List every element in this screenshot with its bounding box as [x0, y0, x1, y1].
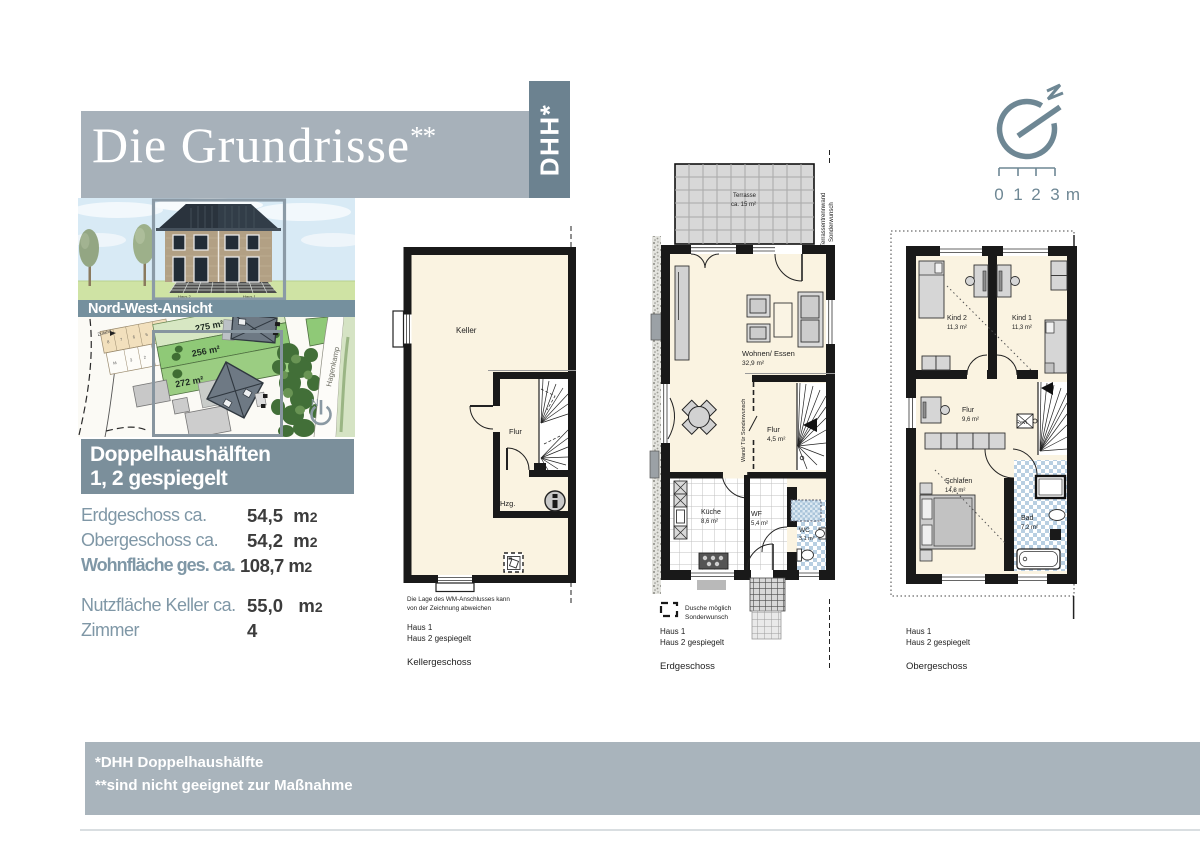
svg-text:1: 1: [1013, 185, 1022, 204]
svg-text:Flur: Flur: [767, 425, 780, 434]
svg-text:Terrassentrennwand: Terrassentrennwand: [821, 193, 827, 247]
svg-text:Sonderwunsch: Sonderwunsch: [829, 202, 835, 242]
svg-text:Erdgeschoss: Erdgeschoss: [660, 661, 715, 672]
svg-text:7,2 m²: 7,2 m²: [1021, 525, 1038, 531]
svg-text:11,3 m²: 11,3 m²: [947, 325, 967, 331]
svg-text:5,4 m²: 5,4 m²: [751, 521, 768, 527]
svg-text:8,6 m²: 8,6 m²: [701, 519, 718, 525]
svg-text:14,8 m²: 14,8 m²: [945, 488, 965, 494]
svg-text:Obergeschoss: Obergeschoss: [906, 661, 968, 672]
svg-text:4,5 m²: 4,5 m²: [767, 436, 786, 443]
svg-text:Haus 1: Haus 1: [660, 627, 686, 636]
svg-text:Haus 2 gespiegelt: Haus 2 gespiegelt: [660, 638, 725, 647]
svg-text:Küche: Küche: [701, 509, 721, 516]
svg-text:m: m: [1066, 185, 1080, 204]
svg-text:Hzg.: Hzg.: [500, 499, 515, 508]
svg-text:Bad: Bad: [1021, 515, 1034, 522]
svg-text:Die Lage des WM-Anschlusses ka: Die Lage des WM-Anschlusses kann: [407, 596, 510, 603]
svg-text:Dusche möglich: Dusche möglich: [685, 605, 732, 612]
svg-text:Flur: Flur: [962, 407, 975, 414]
svg-text:Kind 1: Kind 1: [1012, 315, 1032, 322]
svg-text:Kind 2: Kind 2: [947, 315, 967, 322]
svg-text:Keller: Keller: [456, 326, 477, 335]
svg-text:32,9 m²: 32,9 m²: [742, 360, 765, 367]
svg-text:WF: WF: [751, 511, 762, 518]
svg-text:3: 3: [1050, 185, 1059, 204]
svg-text:11,3 m²: 11,3 m²: [1012, 325, 1032, 331]
svg-text:Kellergeschoss: Kellergeschoss: [407, 657, 472, 668]
svg-text:Terrasse: Terrasse: [733, 193, 757, 199]
svg-text:Wand/ Tür Sonderwunsch: Wand/ Tür Sonderwunsch: [741, 399, 747, 462]
svg-text:Haus 1: Haus 1: [906, 627, 932, 636]
svg-text:2: 2: [1031, 185, 1040, 204]
svg-text:Wohnen/ Essen: Wohnen/ Essen: [742, 349, 795, 358]
svg-text:Haus 2 gespiegelt: Haus 2 gespiegelt: [407, 634, 472, 643]
svg-text:Revi.: Revi.: [1016, 420, 1029, 426]
svg-text:von der Zeichnung abweichen: von der Zeichnung abweichen: [407, 605, 492, 612]
svg-text:ca. 15 m²: ca. 15 m²: [731, 202, 756, 208]
svg-text:Schlafen: Schlafen: [945, 478, 972, 485]
svg-text:9,6 m²: 9,6 m²: [962, 417, 979, 423]
svg-text:WC: WC: [799, 527, 810, 534]
svg-text:3,1 m²: 3,1 m²: [799, 536, 815, 542]
svg-text:Sonderwunsch: Sonderwunsch: [685, 614, 728, 621]
svg-text:Haus 1: Haus 1: [407, 623, 433, 632]
svg-text:Haus 2 gespiegelt: Haus 2 gespiegelt: [906, 638, 971, 647]
svg-text:Flur: Flur: [509, 427, 522, 436]
svg-text:0: 0: [994, 185, 1003, 204]
